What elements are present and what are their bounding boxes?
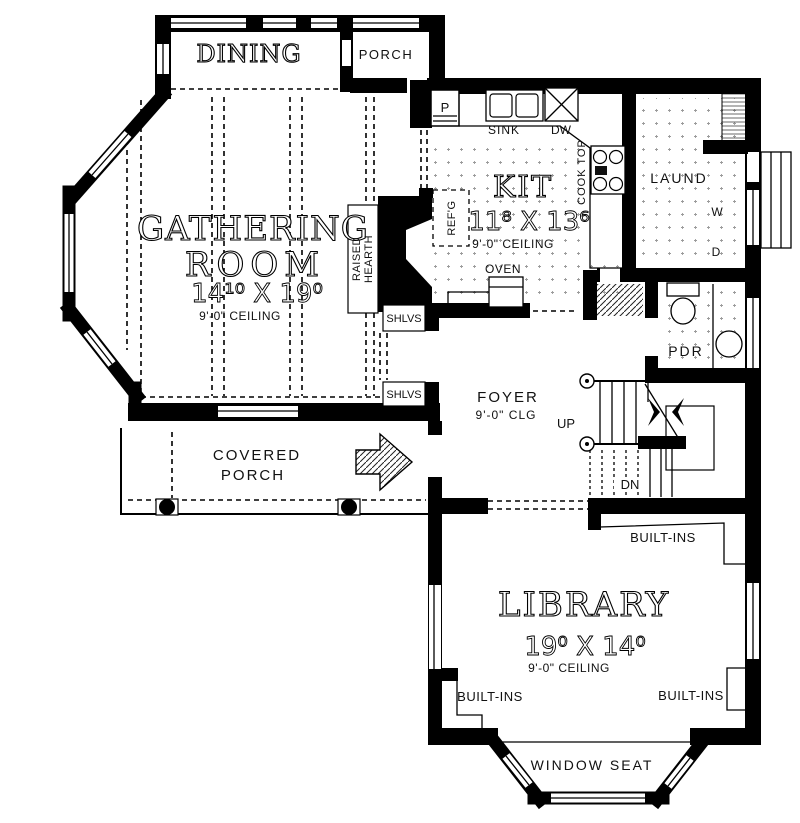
side-stoop: [761, 152, 791, 248]
bay-window-walls: [69, 95, 163, 414]
oven-box: [489, 277, 523, 307]
room-label-kitchen: KIT: [493, 170, 553, 205]
dryer-label: D: [712, 245, 721, 259]
stairs-up-label: UP: [557, 416, 575, 431]
laundry-closet: [722, 93, 748, 141]
oven-label: OVEN: [485, 262, 521, 276]
covered-porch-line2: PORCH: [221, 467, 285, 484]
room-label-library: LIBRARY: [498, 585, 670, 625]
built-ins-label-left: BUILT-INS: [457, 689, 523, 704]
library-ceiling: 9'-0" CEILING: [528, 661, 610, 675]
gathering-dimensions: 14¹⁰ X 19⁰: [191, 279, 323, 309]
room-label-porch: PORCH: [359, 47, 413, 62]
room-label-powder: PDR: [668, 343, 704, 359]
gathering-ceiling: 9'-0" CEILING: [199, 309, 281, 323]
cooktop-label: COOK TOP: [576, 139, 588, 205]
raised-hearth-line2: HEARTH: [363, 235, 375, 283]
sink-counter: [486, 90, 543, 121]
room-label-dining: DINING: [196, 40, 301, 68]
hall-tile-hatch: [597, 284, 643, 316]
kitchen-dimensions: 11⁸ X 13⁶: [468, 207, 589, 237]
pantry-label: P: [441, 100, 450, 115]
lavatory-sink: [716, 331, 742, 357]
shelves-label-upper: SHLVS: [386, 313, 421, 325]
porch-column: [341, 499, 357, 515]
fireplace: [378, 196, 432, 312]
refrigerator-label: REF'G: [446, 200, 458, 235]
washer-label: W: [711, 205, 723, 219]
stairs: [580, 374, 714, 497]
window-seat-label: WINDOW SEAT: [531, 757, 654, 773]
room-label-gathering-line1: GATHERING: [137, 209, 369, 249]
floor-plan-page: DINING PORCH GATHERING ROOM 14¹⁰ X 19⁰ 9…: [0, 0, 800, 823]
floor-plan-drawing: DINING PORCH GATHERING ROOM 14¹⁰ X 19⁰ 9…: [0, 0, 800, 823]
break-arrow-icon: [648, 398, 660, 426]
toilet-tank: [667, 283, 699, 296]
raised-hearth-line1: RAISED: [351, 237, 363, 281]
shelves-label-lower: SHLVS: [386, 389, 421, 401]
built-ins-label-right: BUILT-INS: [658, 688, 724, 703]
porch-column: [159, 499, 175, 515]
dishwasher-label: DW: [551, 123, 572, 137]
covered-porch-line1: COVERED: [213, 447, 301, 464]
stairs-down-label: DN: [621, 477, 640, 492]
kitchen-ceiling: 9'-0" CEILING: [472, 237, 554, 251]
sink-label: SINK: [488, 123, 520, 137]
library-dimensions: 19⁰ X 14⁰: [524, 632, 645, 662]
room-label-foyer: FOYER: [477, 389, 539, 406]
toilet-bowl: [671, 298, 695, 324]
foyer-ceiling: 9'-0" CLG: [476, 408, 537, 422]
entry-arrow-icon: [356, 434, 412, 490]
room-label-laundry: LAUND: [650, 170, 707, 186]
built-ins-label-top: BUILT-INS: [630, 530, 696, 545]
